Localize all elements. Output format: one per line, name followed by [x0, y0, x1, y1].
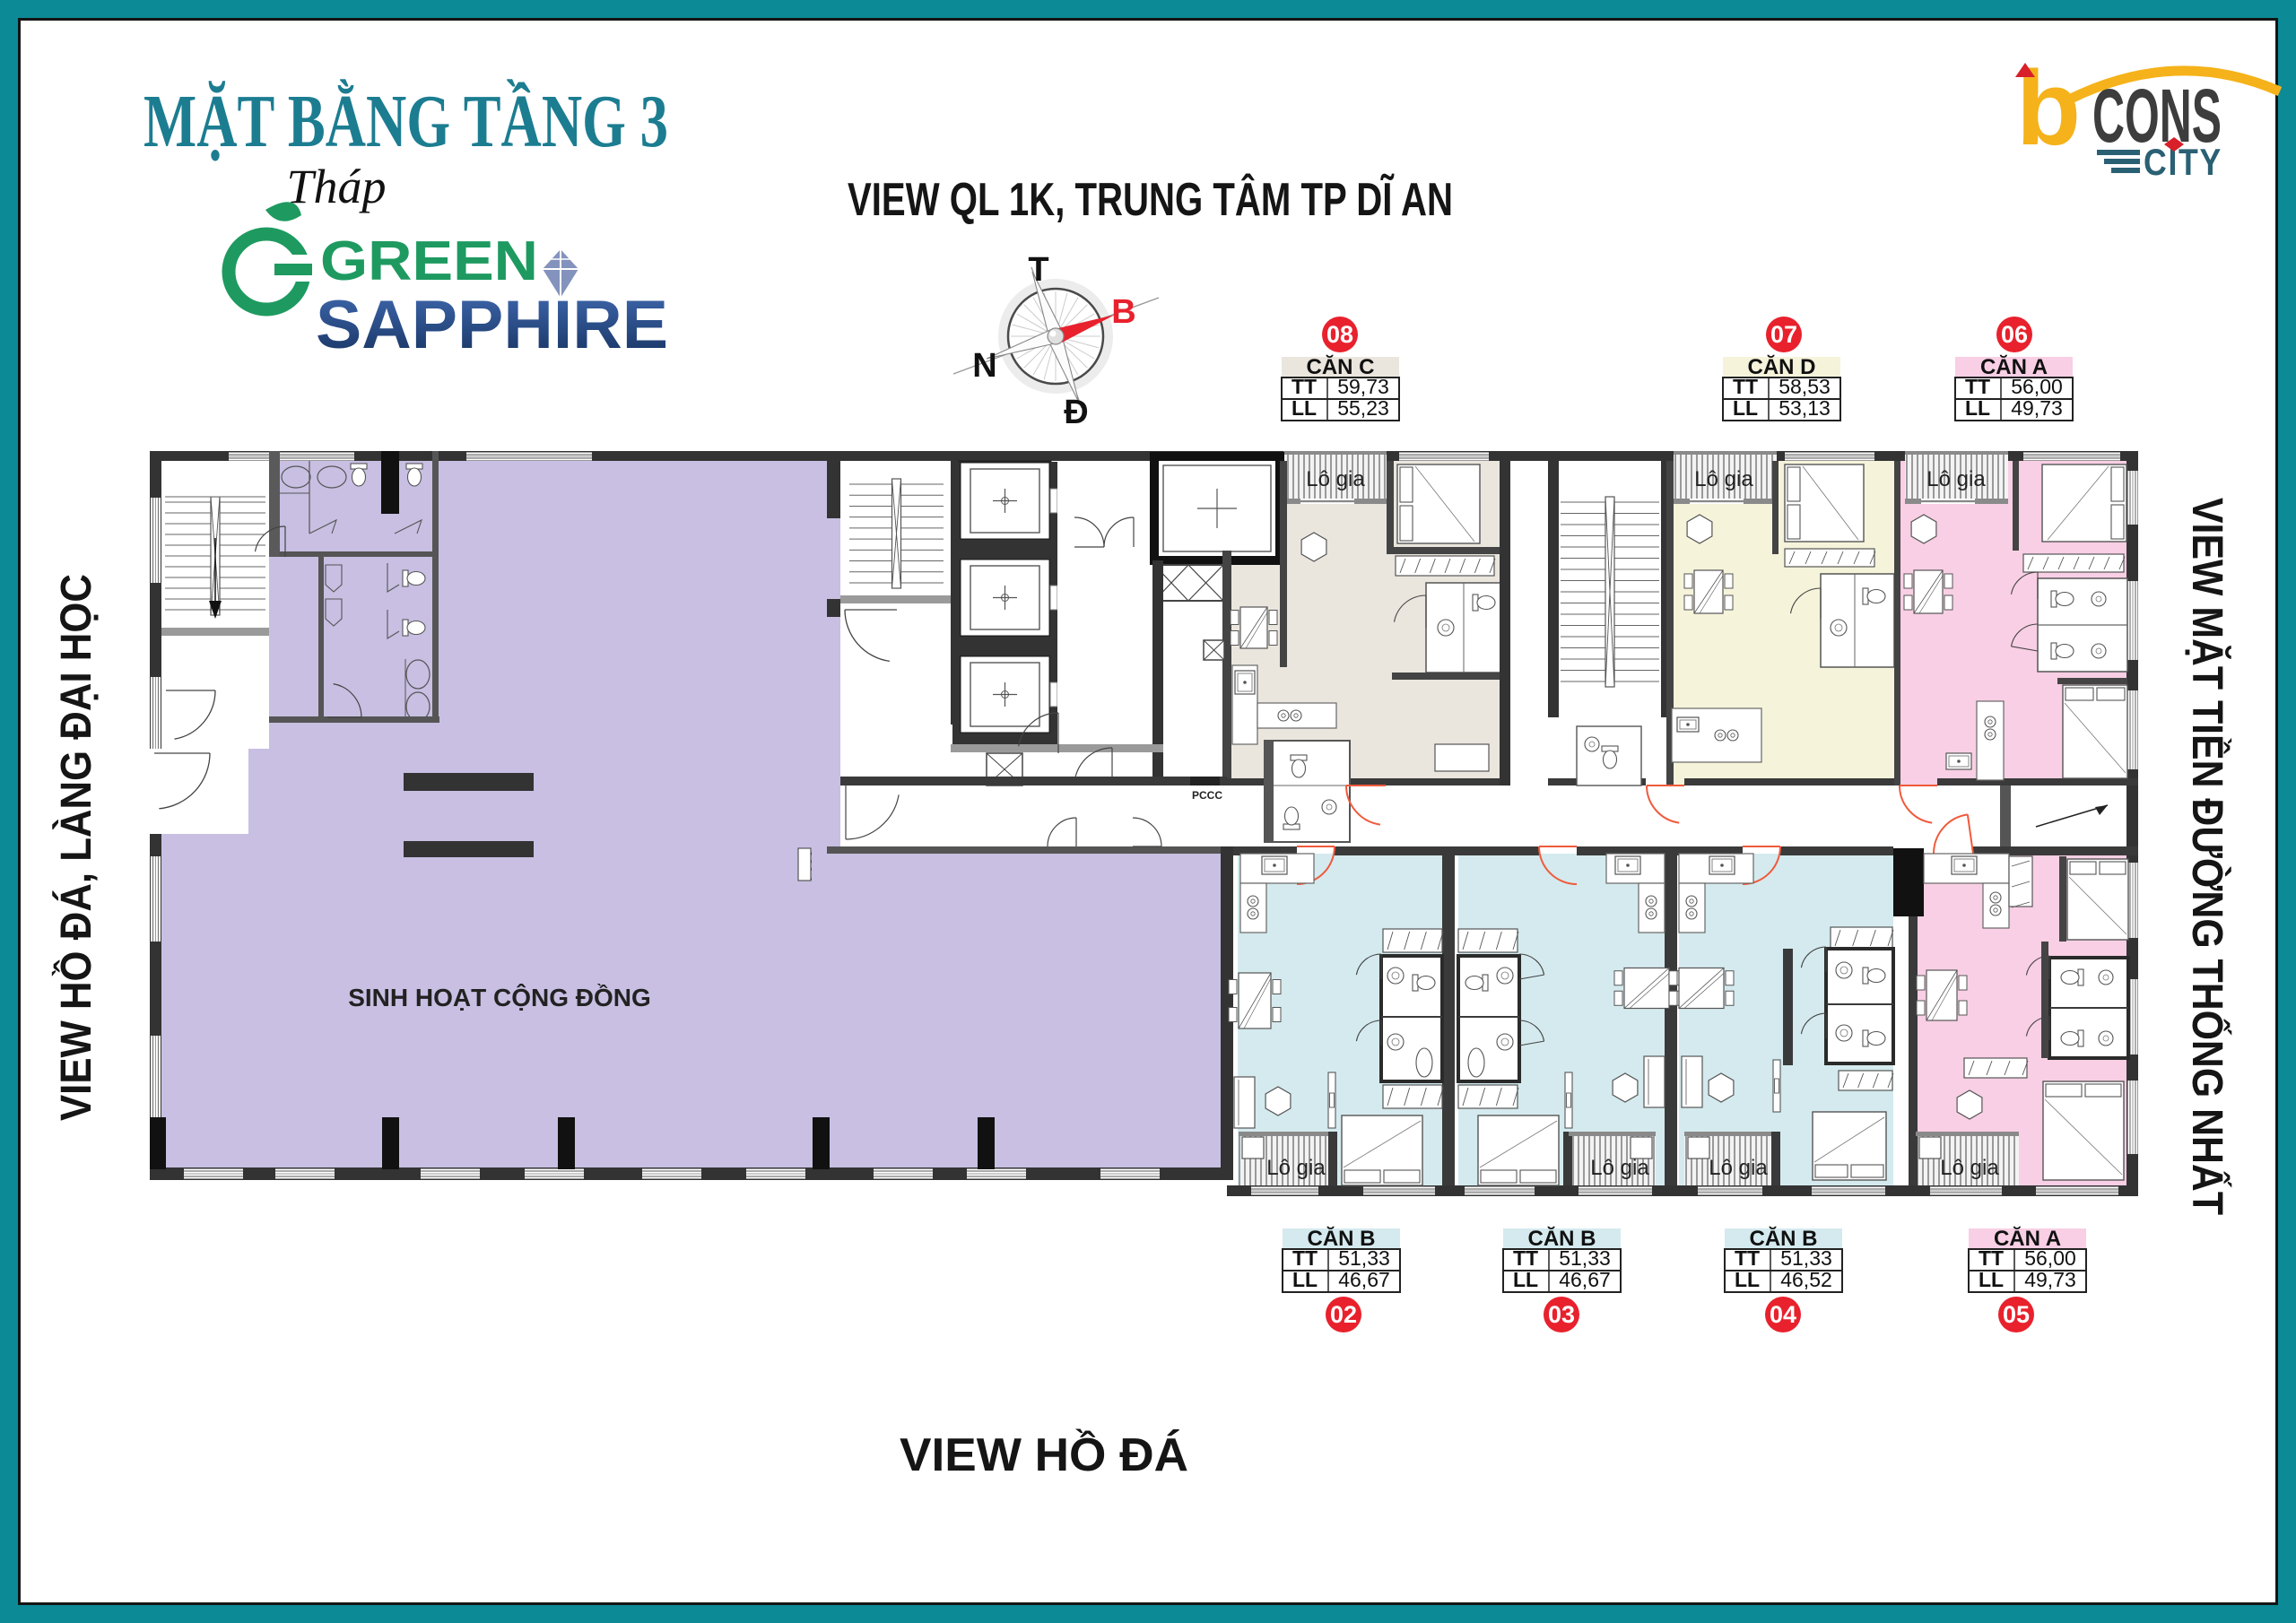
svg-text:Lô gia: Lô gia [1694, 467, 1753, 491]
svg-text:03: 03 [1548, 1301, 1575, 1328]
svg-text:N: N [972, 347, 996, 385]
svg-text:LL: LL [1291, 396, 1317, 420]
svg-text:GREEN: GREEN [320, 230, 538, 292]
svg-text:LL: LL [1292, 1268, 1318, 1291]
svg-text:TT: TT [1292, 1246, 1318, 1270]
svg-text:VIEW HỒ ĐÁ, LÀNG ĐẠI HỌC: VIEW HỒ ĐÁ, LÀNG ĐẠI HỌC [51, 574, 100, 1121]
svg-text:46,52: 46,52 [1780, 1268, 1832, 1291]
svg-text:TT: TT [1965, 375, 1990, 398]
svg-text:02: 02 [1330, 1301, 1357, 1328]
svg-text:51,33: 51,33 [1780, 1246, 1832, 1270]
svg-text:55,23: 55,23 [1337, 396, 1389, 420]
svg-text:B: B [1111, 293, 1135, 331]
svg-text:SINH HOẠT CỘNG ĐỒNG: SINH HOẠT CỘNG ĐỒNG [348, 983, 651, 1011]
svg-text:TT: TT [1735, 1246, 1760, 1270]
svg-text:LL: LL [1735, 1268, 1760, 1291]
svg-text:49,73: 49,73 [2024, 1268, 2076, 1291]
svg-text:Lô gia: Lô gia [1266, 1156, 1326, 1180]
svg-text:51,33: 51,33 [1338, 1246, 1390, 1270]
svg-text:TT: TT [1291, 375, 1317, 398]
svg-text:06: 06 [2001, 321, 2028, 348]
svg-text:Lô gia: Lô gia [1940, 1156, 1999, 1180]
svg-text:SAPPHIRE: SAPPHIRE [316, 287, 668, 363]
svg-text:MẶT BẰNG TẦNG 3: MẶT BẰNG TẦNG 3 [143, 78, 668, 163]
svg-text:T: T [1028, 251, 1048, 289]
svg-text:TT: TT [1979, 1246, 2004, 1270]
svg-text:Lô gia: Lô gia [1709, 1156, 1768, 1180]
svg-text:Lô gia: Lô gia [1926, 467, 1986, 491]
svg-text:TT: TT [1733, 375, 1758, 398]
svg-text:46,67: 46,67 [1338, 1268, 1390, 1291]
svg-text:LL: LL [1733, 396, 1758, 420]
svg-text:53,13: 53,13 [1779, 396, 1831, 420]
svg-text:PCCC: PCCC [1192, 789, 1222, 802]
svg-text:CITY: CITY [2144, 141, 2222, 183]
svg-text:49,73: 49,73 [2011, 396, 2063, 420]
svg-text:TT: TT [1513, 1246, 1538, 1270]
svg-text:LL: LL [1965, 396, 1990, 420]
svg-text:LL: LL [1513, 1268, 1538, 1291]
svg-text:05: 05 [2003, 1301, 2030, 1328]
svg-text:Đ: Đ [1064, 394, 1088, 431]
svg-text:Tháp: Tháp [286, 160, 386, 213]
svg-text:VIEW MẶT TIỀN ĐƯỜNG THỐNG NHẤT: VIEW MẶT TIỀN ĐƯỜNG THỐNG NHẤT [2183, 498, 2232, 1215]
svg-text:VIEW HỒ ĐÁ: VIEW HỒ ĐÁ [900, 1428, 1188, 1481]
svg-text:Lô gia: Lô gia [1306, 467, 1365, 491]
svg-text:VIEW QL 1K, TRUNG TÂM TP DĨ AN: VIEW QL 1K, TRUNG TÂM TP DĨ AN [848, 173, 1453, 226]
svg-text:Lô gia: Lô gia [1590, 1156, 1649, 1180]
svg-text:51,33: 51,33 [1559, 1246, 1611, 1270]
svg-text:07: 07 [1770, 321, 1797, 348]
svg-text:46,67: 46,67 [1559, 1268, 1611, 1291]
svg-text:56,00: 56,00 [2011, 375, 2063, 398]
svg-text:04: 04 [1770, 1301, 1796, 1328]
svg-text:08: 08 [1326, 321, 1353, 348]
svg-text:59,73: 59,73 [1337, 375, 1389, 398]
svg-text:56,00: 56,00 [2024, 1246, 2076, 1270]
svg-text:LL: LL [1979, 1268, 2004, 1291]
svg-text:58,53: 58,53 [1779, 375, 1831, 398]
